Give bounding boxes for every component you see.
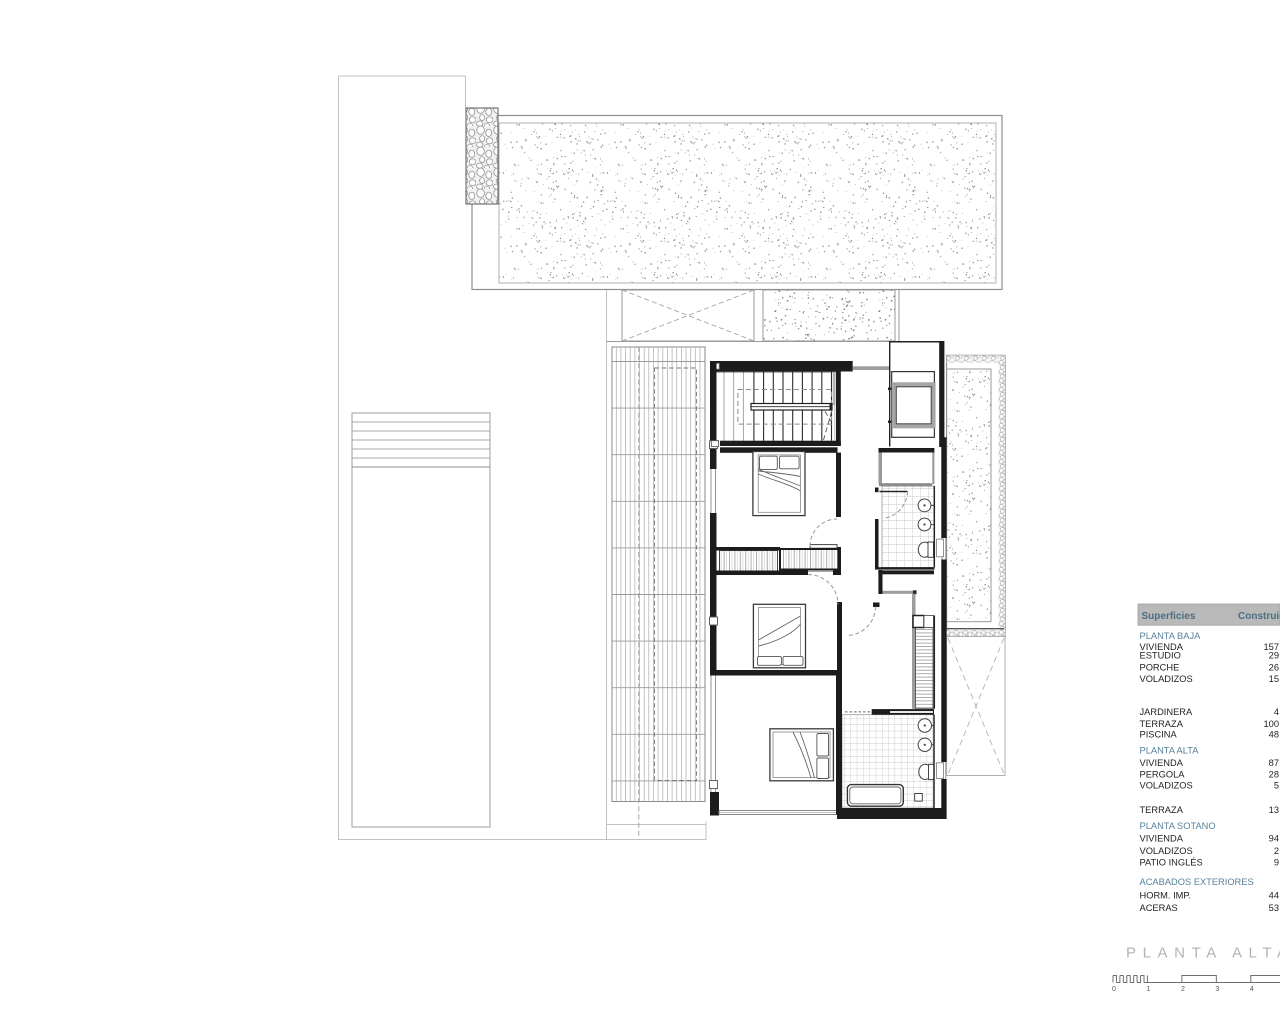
svg-text:ESTUDIO: ESTUDIO <box>1140 651 1181 661</box>
svg-text:PLANTA SOTANO: PLANTA SOTANO <box>1140 821 1216 831</box>
svg-text:VOLADIZOS: VOLADIZOS <box>1140 674 1193 684</box>
svg-text:3: 3 <box>1215 986 1219 993</box>
svg-text:TERRAZA: TERRAZA <box>1140 719 1184 729</box>
svg-text:1: 1 <box>1147 986 1151 993</box>
svg-text:VOLADIZOS: VOLADIZOS <box>1140 781 1193 791</box>
svg-text:29: 29 <box>1269 651 1279 661</box>
svg-text:VOLADIZOS: VOLADIZOS <box>1140 846 1193 856</box>
svg-text:53: 53 <box>1269 903 1279 913</box>
svg-text:PLANTA BAJA: PLANTA BAJA <box>1140 631 1202 641</box>
svg-text:94: 94 <box>1269 834 1279 844</box>
svg-text:2: 2 <box>1181 986 1185 993</box>
svg-text:15: 15 <box>1269 674 1279 684</box>
svg-text:5: 5 <box>1274 781 1279 791</box>
svg-text:ACERAS: ACERAS <box>1140 903 1178 913</box>
svg-text:Construida: Construida <box>1238 611 1280 622</box>
svg-text:0: 0 <box>1112 986 1116 993</box>
svg-text:Superficies: Superficies <box>1142 611 1196 622</box>
svg-text:PLANTA ALTA: PLANTA ALTA <box>1140 745 1200 755</box>
svg-text:26: 26 <box>1269 662 1279 672</box>
svg-text:TERRAZA: TERRAZA <box>1140 805 1184 815</box>
svg-text:9: 9 <box>1274 858 1279 868</box>
svg-text:28: 28 <box>1269 770 1279 780</box>
svg-text:PERGOLA: PERGOLA <box>1140 770 1186 780</box>
svg-text:4: 4 <box>1250 986 1254 993</box>
svg-text:4: 4 <box>1274 707 1279 717</box>
svg-text:HORM. IMP.: HORM. IMP. <box>1140 891 1191 901</box>
svg-text:VIVIENDA: VIVIENDA <box>1140 834 1184 844</box>
svg-text:2: 2 <box>1274 846 1279 856</box>
svg-text:44: 44 <box>1269 891 1279 901</box>
svg-text:JARDINERA: JARDINERA <box>1140 707 1193 717</box>
svg-text:ACABADOS EXTERIORES: ACABADOS EXTERIORES <box>1140 877 1254 887</box>
svg-text:PORCHE: PORCHE <box>1140 662 1180 672</box>
svg-text:PLANTA ALTA: PLANTA ALTA <box>1126 945 1280 962</box>
svg-text:PATIO INGLÉS: PATIO INGLÉS <box>1140 858 1203 868</box>
svg-text:PISCINA: PISCINA <box>1140 730 1178 740</box>
svg-text:13: 13 <box>1269 805 1279 815</box>
svg-text:48: 48 <box>1269 730 1279 740</box>
svg-text:87: 87 <box>1269 758 1279 768</box>
svg-text:100: 100 <box>1263 719 1279 729</box>
svg-text:VIVIENDA: VIVIENDA <box>1140 758 1184 768</box>
